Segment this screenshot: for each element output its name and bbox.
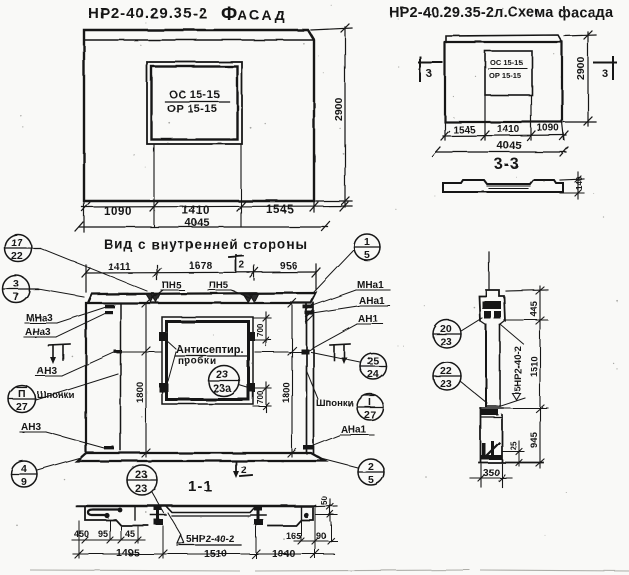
svg-text:5НР2-40-2: 5НР2-40-2 <box>513 346 524 392</box>
svg-text:700: 700 <box>256 390 265 404</box>
svg-text:7: 7 <box>13 291 19 303</box>
svg-text:5: 5 <box>364 249 370 261</box>
svg-text:АНа3: АНа3 <box>25 327 51 338</box>
svg-text:НР2-40.29.35-2л.Схема фасада: НР2-40.29.35-2л.Схема фасада <box>389 5 614 21</box>
svg-text:50: 50 <box>320 496 329 505</box>
svg-text:700: 700 <box>256 323 265 337</box>
svg-text:ОР 15-15: ОР 15-15 <box>167 103 217 115</box>
svg-text:22: 22 <box>11 250 23 262</box>
svg-text:24: 24 <box>367 368 379 380</box>
svg-text:Шпонки: Шпонки <box>316 398 354 409</box>
svg-text:3: 3 <box>602 68 608 80</box>
svg-text:1800: 1800 <box>135 382 146 403</box>
svg-text:1410: 1410 <box>497 124 520 135</box>
svg-text:140: 140 <box>575 176 584 190</box>
svg-text:5НР2-40-2: 5НР2-40-2 <box>186 534 235 545</box>
svg-text:22: 22 <box>440 365 452 377</box>
svg-text:23: 23 <box>135 469 147 481</box>
svg-text:27: 27 <box>16 401 28 413</box>
svg-text:АНа1: АНа1 <box>359 296 385 307</box>
svg-text:23: 23 <box>440 336 452 348</box>
svg-text:445: 445 <box>529 300 540 317</box>
svg-text:3: 3 <box>426 68 432 80</box>
svg-text:АНа1: АНа1 <box>341 425 367 436</box>
svg-text:23а: 23а <box>213 383 232 395</box>
svg-text:1411: 1411 <box>108 262 131 273</box>
svg-text:1545: 1545 <box>453 125 476 136</box>
svg-text:АН3: АН3 <box>21 422 41 433</box>
svg-text:945: 945 <box>529 431 540 448</box>
svg-text:ПН5: ПН5 <box>209 280 229 291</box>
svg-text:Шпонки: Шпонки <box>37 390 75 401</box>
svg-text:2900: 2900 <box>575 56 587 80</box>
svg-text:1495: 1495 <box>116 547 140 559</box>
svg-text:ПН5: ПН5 <box>162 280 182 291</box>
svg-text:3: 3 <box>13 278 19 290</box>
svg-text:2: 2 <box>241 465 247 476</box>
svg-text:3-3: 3-3 <box>494 156 520 173</box>
svg-text:23: 23 <box>135 483 147 495</box>
svg-text:4: 4 <box>21 463 27 475</box>
svg-text:2: 2 <box>368 461 374 473</box>
svg-text:25: 25 <box>509 441 518 450</box>
svg-text:1800: 1800 <box>281 382 292 403</box>
svg-text:5: 5 <box>368 474 374 486</box>
svg-text:МНа1: МНа1 <box>357 280 384 291</box>
svg-text:90: 90 <box>316 531 326 541</box>
svg-text:пробки: пробки <box>178 355 217 367</box>
svg-text:1510: 1510 <box>529 356 540 377</box>
svg-text:НР2-40.29.35-2: НР2-40.29.35-2 <box>88 5 208 22</box>
svg-text:956: 956 <box>280 261 298 272</box>
svg-text:1090: 1090 <box>537 123 560 134</box>
svg-text:17: 17 <box>11 237 23 249</box>
svg-text:20: 20 <box>440 323 452 335</box>
svg-text:2900: 2900 <box>333 97 345 121</box>
svg-text:350: 350 <box>483 468 500 479</box>
svg-text:9: 9 <box>21 476 27 488</box>
svg-text:ОС 15-15: ОС 15-15 <box>490 58 523 67</box>
svg-text:2: 2 <box>239 260 245 271</box>
svg-text:23: 23 <box>440 378 452 390</box>
svg-text:27: 27 <box>364 409 376 421</box>
svg-text:Антисептир.: Антисептир. <box>176 344 244 356</box>
svg-text:23: 23 <box>216 369 228 381</box>
svg-text:Вид с внутренней стороны: Вид с внутренней стороны <box>104 237 308 252</box>
svg-text:4045: 4045 <box>185 217 209 229</box>
svg-text:АН3: АН3 <box>37 366 57 377</box>
svg-text:1410: 1410 <box>182 205 210 217</box>
svg-text:АН1: АН1 <box>358 314 378 325</box>
svg-text:П: П <box>18 388 26 400</box>
svg-text:1510: 1510 <box>204 548 228 560</box>
svg-text:1090: 1090 <box>104 206 132 218</box>
svg-text:1545: 1545 <box>266 204 294 216</box>
svg-text:МНа3: МНа3 <box>26 313 53 324</box>
svg-text:1-1: 1-1 <box>188 478 213 495</box>
svg-text:95: 95 <box>98 529 108 539</box>
svg-text:450: 450 <box>74 529 89 539</box>
svg-text:165: 165 <box>286 531 301 541</box>
svg-text:ФАСАД: ФАСАД <box>221 4 287 25</box>
svg-text:1: 1 <box>364 236 370 248</box>
svg-text:1040: 1040 <box>272 548 296 560</box>
svg-text:ОС 15-15: ОС 15-15 <box>169 89 220 101</box>
svg-text:ОР 15-15: ОР 15-15 <box>489 71 521 80</box>
svg-text:4045: 4045 <box>497 140 521 152</box>
svg-text:25: 25 <box>367 355 379 367</box>
svg-text:1678: 1678 <box>189 261 213 272</box>
svg-text:45: 45 <box>125 529 135 539</box>
